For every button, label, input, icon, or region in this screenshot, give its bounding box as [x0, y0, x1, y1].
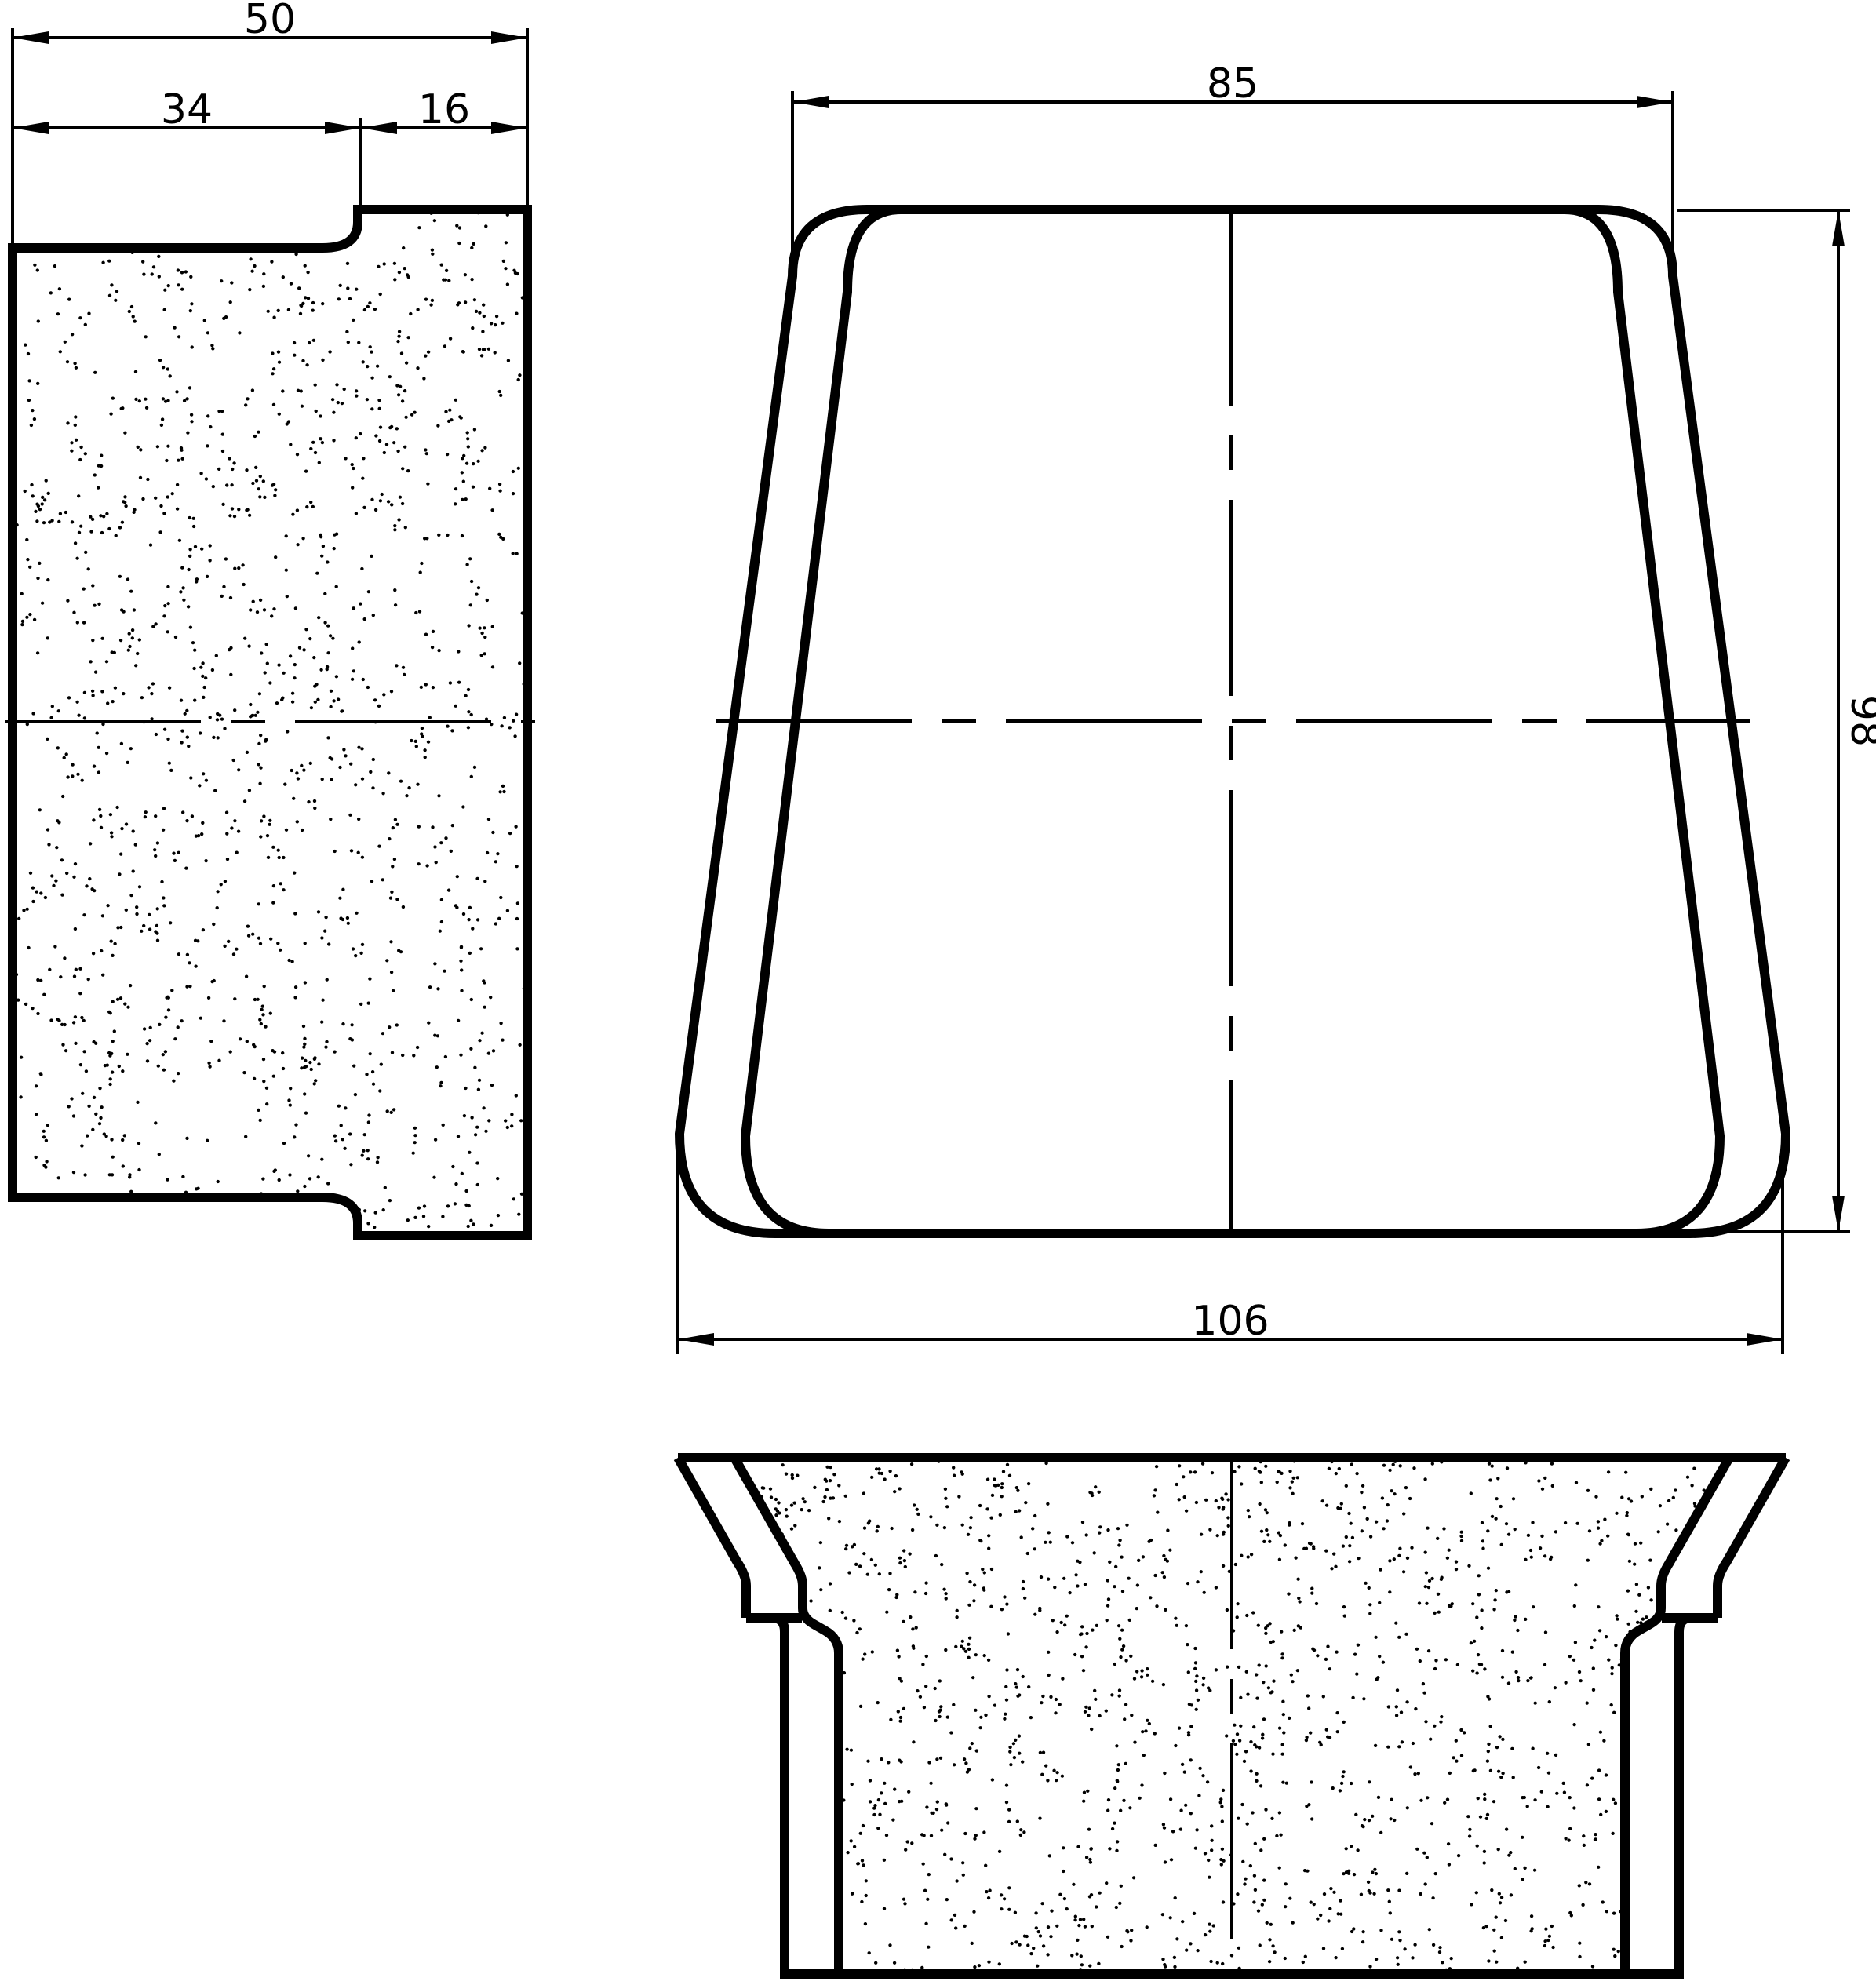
- arrowhead-left: [792, 96, 829, 108]
- arrowhead-left: [13, 122, 49, 134]
- arrowhead-right: [325, 122, 361, 134]
- arrowhead-up: [1832, 210, 1845, 246]
- drawing-sheet: 50 34 16 85: [0, 0, 1876, 1985]
- dimension-34-16: 34 16: [13, 86, 527, 213]
- front-view-left-outer-profile: [678, 1458, 746, 1618]
- arrowhead-left: [361, 122, 397, 134]
- dimension-label-16: 16: [418, 86, 470, 133]
- sand-hatch-side: [11, 203, 528, 1232]
- dimension-label-50: 50: [244, 0, 296, 43]
- side-section-view: 50 34 16: [5, 0, 535, 1236]
- arrowhead-right: [491, 122, 527, 134]
- top-view: 85 106 98: [678, 60, 1876, 1354]
- arrowhead-right: [1747, 1333, 1783, 1346]
- dimension-label-85: 85: [1207, 60, 1259, 107]
- front-view-right-lower-outer: [1679, 1618, 1692, 1974]
- dimension-label-106: 106: [1191, 1298, 1269, 1345]
- arrowhead-left: [678, 1333, 714, 1346]
- dimension-label-34: 34: [161, 86, 213, 133]
- dimension-label-98: 98: [1841, 695, 1876, 747]
- drawing-canvas: 50 34 16 85: [0, 0, 1876, 1985]
- arrowhead-right: [1637, 96, 1673, 108]
- front-view-right-outer-profile: [1718, 1458, 1786, 1618]
- arrowhead-left: [13, 31, 49, 44]
- front-section-view: [678, 1453, 1786, 1979]
- front-view-left-lower-outer: [772, 1618, 785, 1974]
- arrowhead-down: [1832, 1196, 1845, 1232]
- arrowhead-right: [491, 31, 527, 44]
